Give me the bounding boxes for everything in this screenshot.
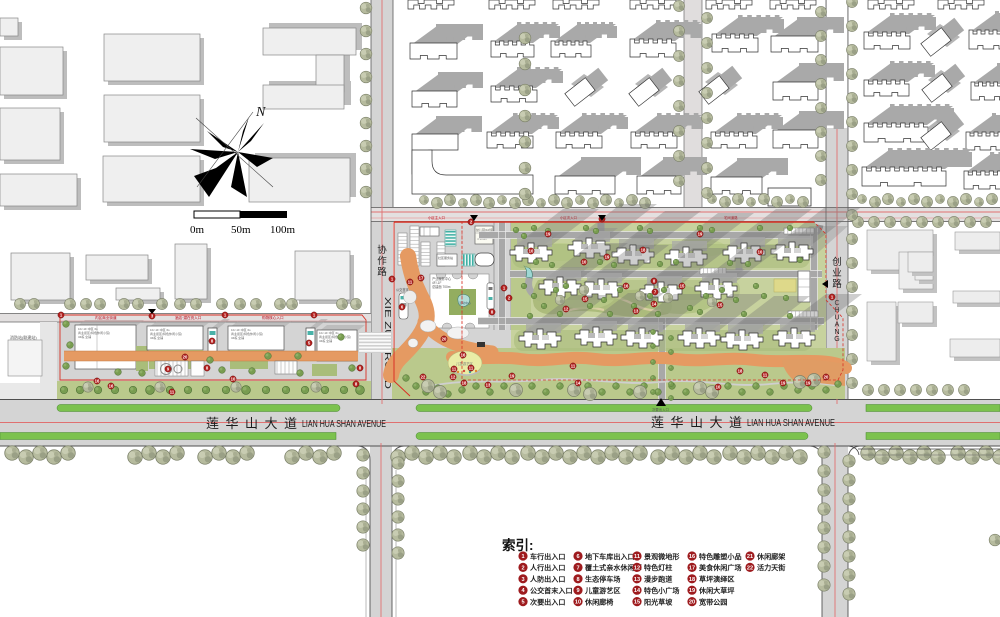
svg-text:17: 17 bbox=[689, 565, 695, 571]
svg-text:19: 19 bbox=[806, 381, 811, 386]
svg-text:公交首末入口: 公交首末入口 bbox=[530, 586, 573, 595]
svg-text:11: 11 bbox=[571, 364, 576, 369]
svg-text:12: 12 bbox=[451, 375, 456, 380]
svg-text:15: 15 bbox=[680, 284, 685, 289]
svg-text:0m: 0m bbox=[190, 224, 205, 236]
svg-text:地下车库出入口: 地下车库出入口 bbox=[585, 552, 635, 561]
svg-text:5: 5 bbox=[521, 600, 524, 606]
svg-text:20: 20 bbox=[183, 355, 188, 360]
svg-text:A: A bbox=[835, 322, 840, 329]
svg-text:11: 11 bbox=[170, 390, 175, 395]
svg-text:11: 11 bbox=[634, 554, 640, 560]
svg-text:LIAN HUA SHAN AVENUE: LIAN HUA SHAN AVENUE bbox=[747, 417, 835, 429]
svg-text:10: 10 bbox=[758, 250, 763, 255]
svg-text:10: 10 bbox=[529, 249, 534, 254]
svg-text:总建面 700m: 总建面 700m bbox=[432, 284, 451, 289]
svg-text:休闲廊椅: 休闲廊椅 bbox=[584, 597, 613, 606]
svg-text:13: 13 bbox=[634, 309, 639, 314]
svg-text:生态停车场: 生态停车场 bbox=[585, 575, 620, 584]
svg-text:索引:: 索引: bbox=[502, 537, 534, 553]
svg-text:特色小广场: 特色小广场 bbox=[644, 586, 679, 595]
svg-text:19: 19 bbox=[689, 588, 695, 594]
svg-text:12: 12 bbox=[634, 565, 640, 571]
svg-text:11: 11 bbox=[763, 373, 768, 378]
svg-text:休闲廊架: 休闲廊架 bbox=[756, 552, 786, 561]
svg-text:社区服务站: 社区服务站 bbox=[438, 255, 453, 260]
svg-text:19: 19 bbox=[781, 381, 786, 386]
svg-text:11: 11 bbox=[469, 366, 474, 371]
svg-text:活动中心: 活动中心 bbox=[459, 300, 471, 305]
svg-text:宽带公园: 宽带公园 bbox=[698, 597, 727, 606]
svg-text:34栋 全铺: 34栋 全铺 bbox=[78, 334, 91, 339]
svg-text:次要出入口: 次要出入口 bbox=[652, 407, 669, 412]
svg-text:18: 18 bbox=[641, 248, 646, 253]
svg-text:14: 14 bbox=[634, 588, 641, 594]
svg-text:19: 19 bbox=[510, 374, 515, 379]
svg-text:特色雕塑小品: 特色雕塑小品 bbox=[699, 552, 742, 561]
svg-text:15: 15 bbox=[718, 303, 723, 308]
svg-text:休闲大草坪: 休闲大草坪 bbox=[698, 586, 734, 595]
svg-text:6: 6 bbox=[576, 554, 579, 560]
svg-text:购物核心入口: 购物核心入口 bbox=[262, 315, 284, 320]
svg-text:16: 16 bbox=[689, 554, 695, 560]
svg-text:21: 21 bbox=[747, 554, 753, 560]
svg-text:业: 业 bbox=[832, 268, 842, 279]
svg-text:17: 17 bbox=[419, 276, 424, 281]
svg-text:小区主入口: 小区主入口 bbox=[428, 215, 445, 220]
svg-text:路: 路 bbox=[832, 278, 842, 290]
svg-text:18: 18 bbox=[738, 369, 743, 374]
svg-text:18: 18 bbox=[689, 577, 695, 583]
svg-text:美食休闲广场: 美食休闲广场 bbox=[699, 563, 742, 572]
svg-text:消防站(联建站): 消防站(联建站) bbox=[10, 334, 37, 340]
svg-text:协: 协 bbox=[377, 244, 387, 256]
svg-text:16: 16 bbox=[109, 384, 114, 389]
svg-text:U: U bbox=[834, 314, 839, 321]
svg-text:20: 20 bbox=[442, 337, 447, 342]
svg-text:3: 3 bbox=[521, 577, 524, 583]
svg-text:11: 11 bbox=[408, 280, 413, 285]
svg-text:34栋 全铺: 34栋 全铺 bbox=[150, 335, 163, 340]
svg-text:景观微地形: 景观微地形 bbox=[643, 552, 680, 561]
svg-text:草坪演绎区: 草坪演绎区 bbox=[699, 575, 734, 584]
svg-text:19: 19 bbox=[698, 232, 703, 237]
svg-text:漫步跑道: 漫步跑道 bbox=[644, 575, 673, 584]
svg-text:人行出入口: 人行出入口 bbox=[530, 563, 565, 572]
svg-text:50m: 50m bbox=[231, 224, 251, 236]
svg-text:34栋 全铺: 34栋 全铺 bbox=[319, 338, 332, 343]
svg-text:10: 10 bbox=[231, 377, 236, 382]
svg-text:20: 20 bbox=[689, 600, 695, 606]
svg-text:活力天街: 活力天街 bbox=[757, 563, 785, 572]
svg-text:10: 10 bbox=[582, 260, 587, 265]
svg-text:9: 9 bbox=[576, 588, 579, 594]
svg-text:人防出入口: 人防出入口 bbox=[530, 575, 565, 584]
svg-text:19: 19 bbox=[546, 232, 551, 237]
svg-text:LIAN HUA SHAN AVENUE: LIAN HUA SHAN AVENUE bbox=[302, 418, 386, 430]
svg-text:车行出入口: 车行出入口 bbox=[530, 552, 565, 561]
svg-text:2: 2 bbox=[521, 565, 524, 571]
svg-text:N: N bbox=[834, 329, 839, 336]
svg-text:16: 16 bbox=[461, 353, 466, 358]
svg-text:N: N bbox=[255, 105, 266, 120]
svg-text:22: 22 bbox=[421, 375, 426, 380]
svg-text:创: 创 bbox=[832, 256, 842, 268]
svg-text:12: 12 bbox=[564, 307, 569, 312]
svg-text:16: 16 bbox=[624, 284, 629, 289]
svg-text:13: 13 bbox=[486, 383, 491, 388]
svg-text:15: 15 bbox=[634, 600, 640, 606]
svg-text:7: 7 bbox=[576, 565, 579, 571]
svg-text:100m: 100m bbox=[270, 224, 296, 236]
svg-text:19: 19 bbox=[605, 255, 610, 260]
svg-text:酒店·潜在亮入口: 酒店·潜在亮入口 bbox=[175, 315, 202, 320]
svg-text:16: 16 bbox=[95, 379, 100, 384]
svg-text:20: 20 bbox=[824, 375, 829, 380]
svg-text:14: 14 bbox=[576, 381, 581, 386]
svg-text:10: 10 bbox=[716, 385, 721, 390]
svg-text:内区商业街道: 内区商业街道 bbox=[95, 315, 117, 320]
svg-text:阳光草坡: 阳光草坡 bbox=[644, 597, 673, 606]
svg-text:10: 10 bbox=[575, 600, 581, 606]
svg-text:儿童游艺区: 儿童游艺区 bbox=[584, 586, 620, 595]
svg-text:15: 15 bbox=[583, 297, 588, 302]
svg-text:特色灯柱: 特色灯柱 bbox=[644, 563, 672, 572]
svg-text:14: 14 bbox=[652, 302, 657, 307]
svg-text:路: 路 bbox=[377, 266, 387, 278]
svg-text:次要出入口: 次要出入口 bbox=[530, 597, 565, 606]
svg-text:13: 13 bbox=[634, 577, 640, 583]
svg-text:34栋 全铺: 34栋 全铺 bbox=[231, 335, 244, 340]
svg-text:1: 1 bbox=[521, 554, 524, 560]
svg-text:8: 8 bbox=[576, 577, 579, 583]
svg-text:11: 11 bbox=[452, 367, 457, 372]
svg-text:G: G bbox=[834, 336, 839, 343]
svg-text:22: 22 bbox=[747, 565, 753, 571]
svg-text:18: 18 bbox=[462, 381, 467, 386]
svg-text:作: 作 bbox=[377, 255, 387, 267]
